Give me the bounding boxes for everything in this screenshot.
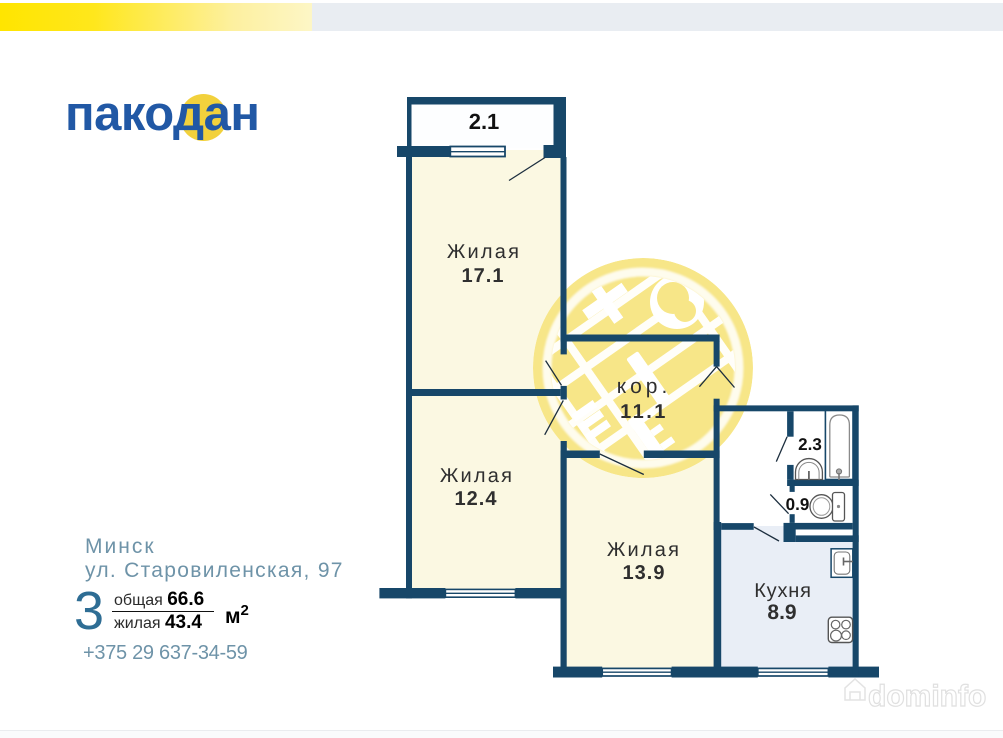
svg-text:Жилая: Жилая [440,465,514,487]
svg-text:dominfo: dominfo [868,680,986,713]
svg-text:0.9: 0.9 [786,495,810,514]
svg-text:2.3: 2.3 [798,435,822,454]
svg-text:12.4: 12.4 [455,488,498,510]
svg-text:8.9: 8.9 [767,601,796,624]
svg-text:кор.: кор. [617,375,672,398]
svg-text:Жилая: Жилая [607,539,681,561]
svg-text:Жилая: Жилая [447,241,521,263]
svg-text:11.1: 11.1 [620,401,668,423]
svg-text:2.1: 2.1 [469,109,500,134]
svg-text:13.9: 13.9 [623,562,666,584]
svg-text:17.1: 17.1 [462,265,505,287]
svg-text:Кухня: Кухня [754,580,812,602]
